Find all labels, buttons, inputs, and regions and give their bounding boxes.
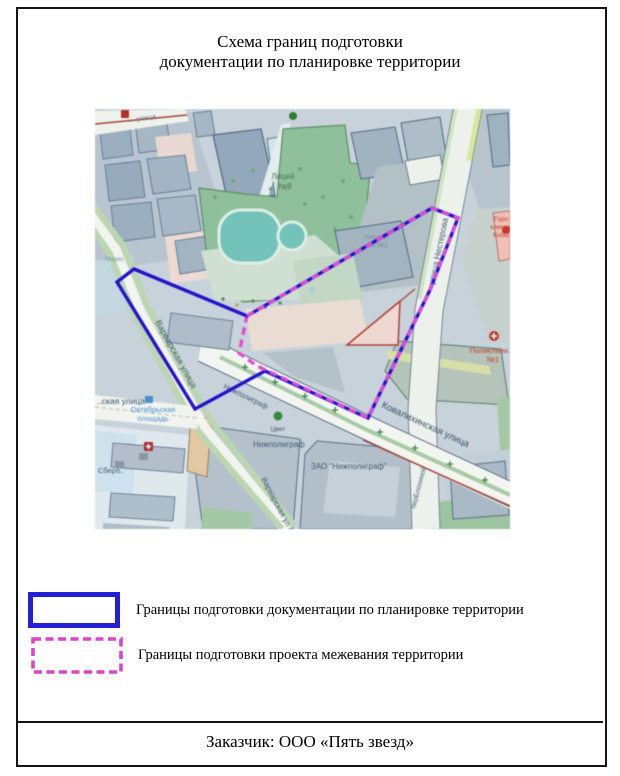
svg-text:Р: Р — [309, 286, 315, 296]
svg-text:ЗАО "Нижполиграф": ЗАО "Нижполиграф" — [311, 462, 387, 471]
svg-text:Цвет: Цвет — [271, 426, 286, 433]
svg-text:Нижполиграф: Нижполиграф — [253, 440, 305, 449]
svg-text:Лицей: Лицей — [271, 172, 294, 181]
svg-text:площадь: площадь — [137, 414, 168, 423]
svg-text:Октябрьская: Октябрьская — [131, 405, 176, 414]
svg-text:№1: №1 — [487, 355, 499, 364]
svg-text:Поликлини..: Поликлини.. — [470, 346, 510, 355]
svg-text:Маркс: Маркс — [105, 256, 125, 263]
svg-text:Горо: Горо — [494, 216, 508, 223]
svg-text:№8: №8 — [278, 182, 292, 191]
svg-text:..ская улица: ..ская улица — [97, 396, 145, 406]
